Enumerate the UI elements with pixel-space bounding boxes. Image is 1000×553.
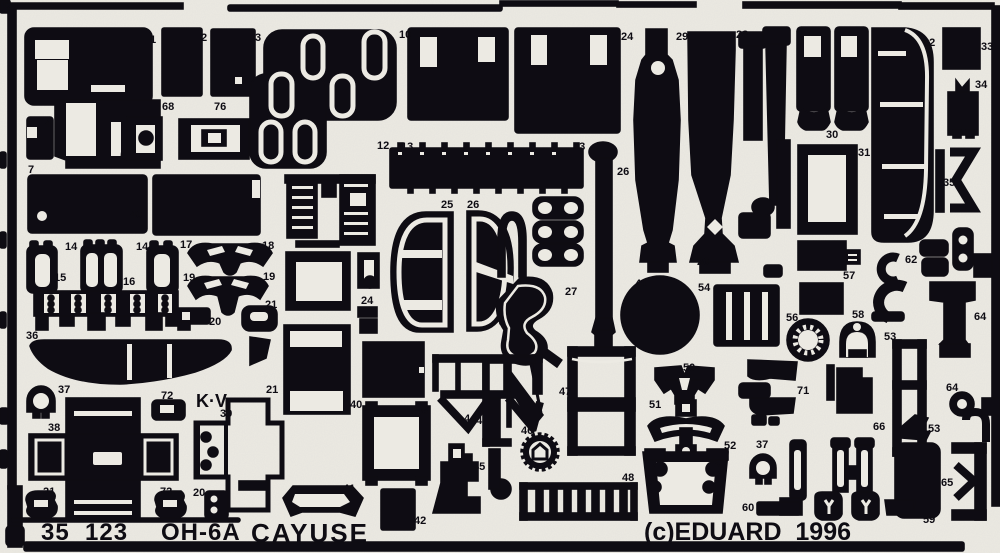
svg-text:26: 26 bbox=[617, 166, 629, 178]
svg-text:19: 19 bbox=[263, 271, 275, 283]
svg-text:13: 13 bbox=[573, 141, 585, 153]
svg-text:24: 24 bbox=[621, 31, 634, 43]
svg-text:43: 43 bbox=[416, 405, 428, 417]
svg-text:20: 20 bbox=[209, 316, 221, 328]
svg-text:24: 24 bbox=[361, 295, 374, 307]
svg-text:76: 76 bbox=[214, 101, 226, 113]
svg-text:20: 20 bbox=[193, 487, 205, 499]
svg-text:7: 7 bbox=[28, 164, 34, 176]
svg-text:10: 10 bbox=[399, 29, 411, 41]
svg-text:71: 71 bbox=[797, 385, 809, 397]
svg-text:33: 33 bbox=[981, 41, 993, 53]
svg-text:17: 17 bbox=[180, 239, 192, 251]
svg-text:2: 2 bbox=[201, 32, 207, 44]
svg-text:54: 54 bbox=[698, 282, 711, 294]
svg-text:72: 72 bbox=[161, 390, 173, 402]
svg-text:CAYUSE: CAYUSE bbox=[251, 518, 369, 548]
svg-text:16: 16 bbox=[123, 276, 135, 288]
svg-text:21: 21 bbox=[43, 486, 55, 498]
svg-text:12: 12 bbox=[377, 140, 389, 152]
svg-text:19: 19 bbox=[183, 272, 195, 284]
svg-text:42: 42 bbox=[414, 515, 426, 527]
svg-text:47: 47 bbox=[559, 386, 571, 398]
svg-text:48: 48 bbox=[622, 472, 634, 484]
svg-text:OH-6A: OH-6A bbox=[161, 519, 241, 546]
svg-text:21: 21 bbox=[265, 299, 277, 311]
svg-text:41: 41 bbox=[343, 483, 355, 495]
svg-text:41: 41 bbox=[635, 278, 647, 290]
svg-text:40: 40 bbox=[350, 399, 362, 411]
svg-text:72: 72 bbox=[160, 486, 172, 498]
svg-text:59: 59 bbox=[923, 514, 935, 526]
svg-text:37: 37 bbox=[58, 384, 70, 396]
svg-text:40: 40 bbox=[130, 209, 142, 221]
svg-text:31: 31 bbox=[858, 147, 870, 159]
svg-text:64: 64 bbox=[946, 382, 959, 394]
svg-text:27: 27 bbox=[565, 286, 577, 298]
svg-text:3: 3 bbox=[255, 32, 261, 44]
svg-text:21: 21 bbox=[266, 384, 278, 396]
svg-text:46: 46 bbox=[521, 425, 533, 437]
svg-text:65: 65 bbox=[941, 477, 953, 489]
svg-text:52: 52 bbox=[724, 440, 736, 452]
svg-text:57: 57 bbox=[843, 270, 855, 282]
svg-text:64: 64 bbox=[974, 311, 987, 323]
svg-text:62: 62 bbox=[905, 254, 917, 266]
svg-text:53: 53 bbox=[884, 331, 896, 343]
svg-text:35 123: 35 123 bbox=[41, 519, 128, 546]
svg-text:25: 25 bbox=[441, 199, 453, 211]
svg-text:56: 56 bbox=[786, 312, 798, 324]
svg-text:28: 28 bbox=[736, 29, 748, 41]
svg-text:45: 45 bbox=[473, 461, 485, 473]
svg-text:66: 66 bbox=[873, 421, 885, 433]
svg-text:68: 68 bbox=[162, 101, 174, 113]
svg-text:15: 15 bbox=[54, 272, 66, 284]
svg-text:53: 53 bbox=[928, 423, 940, 435]
svg-text:51: 51 bbox=[649, 399, 661, 411]
svg-text:13: 13 bbox=[401, 141, 413, 153]
svg-text:1: 1 bbox=[150, 34, 156, 46]
svg-text:5: 5 bbox=[120, 151, 126, 163]
svg-text:44: 44 bbox=[470, 415, 483, 427]
svg-text:58: 58 bbox=[852, 309, 864, 321]
svg-text:35: 35 bbox=[943, 177, 955, 189]
svg-text:30: 30 bbox=[826, 129, 838, 141]
svg-text:14: 14 bbox=[136, 241, 149, 253]
svg-text:50: 50 bbox=[683, 362, 695, 374]
svg-text:32: 32 bbox=[923, 37, 935, 49]
svg-text:4: 4 bbox=[45, 118, 52, 130]
svg-text:39: 39 bbox=[220, 408, 232, 420]
svg-text:14: 14 bbox=[65, 241, 78, 253]
svg-text:34: 34 bbox=[975, 79, 988, 91]
svg-text:18: 18 bbox=[262, 240, 274, 252]
svg-text:37: 37 bbox=[756, 439, 768, 451]
svg-text:29: 29 bbox=[676, 31, 688, 43]
svg-text:(c)EDUARD 1996: (c)EDUARD 1996 bbox=[644, 518, 851, 546]
svg-text:36: 36 bbox=[26, 330, 38, 342]
svg-text:20: 20 bbox=[697, 256, 709, 268]
svg-text:60: 60 bbox=[742, 502, 754, 514]
svg-text:26: 26 bbox=[467, 199, 479, 211]
svg-text:38: 38 bbox=[48, 422, 60, 434]
